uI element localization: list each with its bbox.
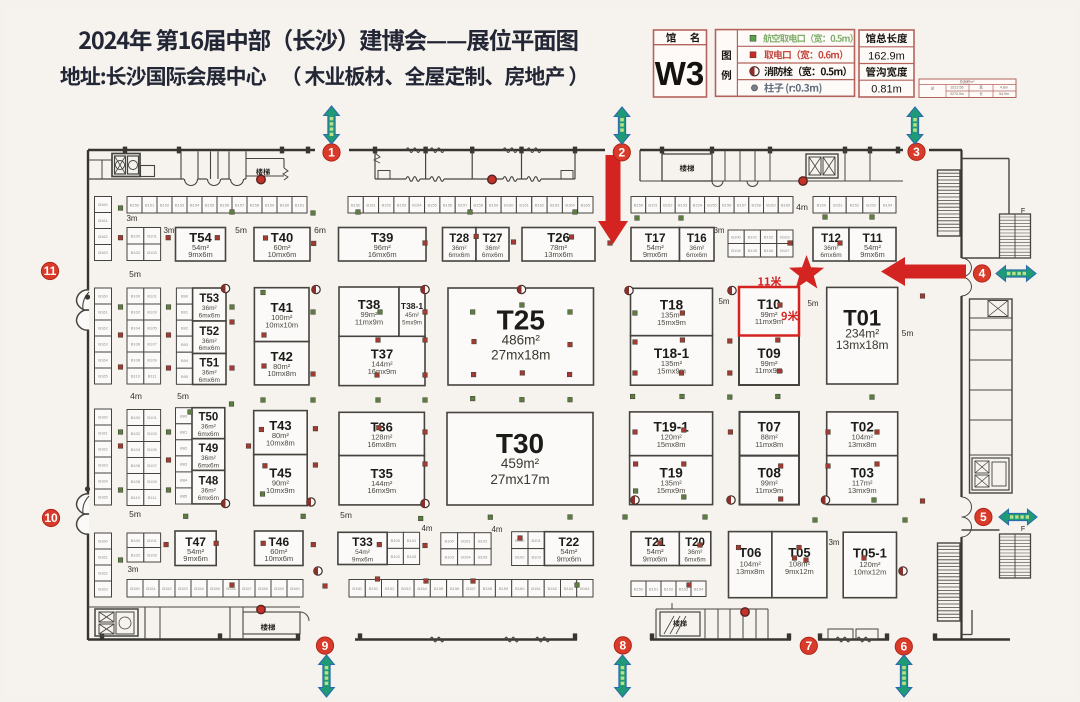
svg-text:B154: B154 <box>883 202 893 207</box>
svg-text:B103: B103 <box>147 552 157 557</box>
svg-text:10mx8m: 10mx8m <box>266 439 295 448</box>
svg-text:B162: B162 <box>98 571 108 576</box>
svg-text:B101: B101 <box>147 294 157 299</box>
svg-text:B152: B152 <box>663 202 673 207</box>
svg-text:13mx8m: 13mx8m <box>848 440 877 449</box>
svg-text:13mx6m: 13mx6m <box>544 250 573 259</box>
svg-text:B106: B106 <box>131 342 141 347</box>
svg-text:B108: B108 <box>131 358 141 363</box>
svg-text:B165: B165 <box>98 495 108 500</box>
svg-text:T28: T28 <box>449 233 469 245</box>
svg-text:B154: B154 <box>694 586 704 591</box>
svg-text:B102: B102 <box>391 554 401 559</box>
svg-text:T27: T27 <box>483 233 503 245</box>
svg-text:36m²: 36m² <box>201 455 217 462</box>
svg-text:B159: B159 <box>499 586 509 591</box>
svg-text:B159: B159 <box>766 202 776 207</box>
svg-text:B159: B159 <box>265 202 275 207</box>
svg-text:6mx6m: 6mx6m <box>199 377 220 384</box>
svg-text:B82: B82 <box>180 445 188 450</box>
svg-text:B110: B110 <box>131 374 141 379</box>
svg-text:B103: B103 <box>147 310 157 315</box>
svg-text:6mx6m: 6mx6m <box>199 345 220 352</box>
svg-text:5m: 5m <box>807 299 818 308</box>
svg-text:13mx18m: 13mx18m <box>836 338 889 352</box>
svg-text:B110: B110 <box>131 495 141 500</box>
svg-text:宽: 宽 <box>979 85 983 90</box>
svg-text:36m²: 36m² <box>485 245 501 252</box>
svg-text:总: 总 <box>931 85 935 90</box>
svg-text:B152: B152 <box>382 202 392 207</box>
svg-text:B91: B91 <box>181 310 189 315</box>
svg-text:15mx9m: 15mx9m <box>657 318 686 327</box>
svg-text:B164: B164 <box>580 586 590 591</box>
svg-text:11mx9m: 11mx9m <box>355 318 383 327</box>
svg-text:9mx6m: 9mx6m <box>188 250 213 259</box>
svg-text:162.9m: 162.9m <box>868 51 905 63</box>
svg-text:10: 10 <box>44 511 58 525</box>
svg-text:B154: B154 <box>412 202 422 207</box>
svg-text:B106: B106 <box>764 248 774 253</box>
svg-text:15mx9m: 15mx9m <box>657 486 686 495</box>
svg-text:B152: B152 <box>385 586 395 591</box>
svg-text:5m: 5m <box>902 328 914 338</box>
svg-text:486m²: 486m² <box>502 333 541 348</box>
svg-text:B101: B101 <box>748 234 758 239</box>
svg-text:36m²: 36m² <box>689 245 705 252</box>
svg-text:B156: B156 <box>220 202 230 207</box>
svg-text:9mx6m: 9mx6m <box>183 554 208 563</box>
svg-text:B100: B100 <box>131 294 141 299</box>
svg-text:6m: 6m <box>314 225 326 235</box>
svg-text:36m²: 36m² <box>202 370 218 377</box>
svg-text:T50: T50 <box>198 412 218 424</box>
svg-text:15mx8m: 15mx8m <box>657 440 686 449</box>
svg-text:B164: B164 <box>565 202 575 207</box>
svg-text:T33: T33 <box>352 535 373 549</box>
svg-text:T51: T51 <box>199 358 219 370</box>
svg-text:5m: 5m <box>177 391 189 401</box>
svg-text:B152: B152 <box>664 586 674 591</box>
svg-text:5m: 5m <box>129 509 141 519</box>
svg-text:B160: B160 <box>98 539 108 544</box>
svg-text:16mx8m: 16mx8m <box>367 440 396 449</box>
svg-text:总面积m²: 总面积m² <box>960 79 976 84</box>
svg-text:4m: 4m <box>491 525 502 534</box>
svg-text:B108: B108 <box>131 479 141 484</box>
svg-text:36m²: 36m² <box>202 338 218 345</box>
svg-text:459m²: 459m² <box>501 456 540 471</box>
svg-text:6mx6m: 6mx6m <box>684 557 705 564</box>
svg-text:B102: B102 <box>764 234 774 239</box>
svg-text:B100: B100 <box>131 538 141 543</box>
svg-text:3m: 3m <box>126 214 137 223</box>
svg-text:3m: 3m <box>127 565 138 574</box>
svg-text:长: 长 <box>979 91 983 96</box>
svg-text:9mx12m: 9mx12m <box>785 567 814 576</box>
svg-text:5: 5 <box>980 510 987 524</box>
svg-text:B162: B162 <box>98 447 108 452</box>
svg-text:0.81m: 0.81m <box>871 84 902 96</box>
svg-text:B101: B101 <box>532 538 542 543</box>
svg-text:T48: T48 <box>198 476 218 488</box>
svg-text:B102: B102 <box>131 552 141 557</box>
svg-text:6mx6m: 6mx6m <box>198 463 219 470</box>
svg-text:B150: B150 <box>634 586 644 591</box>
svg-text:B100: B100 <box>131 415 141 420</box>
svg-text:T49: T49 <box>198 443 218 455</box>
svg-text:B153: B153 <box>866 202 876 207</box>
svg-text:B81: B81 <box>180 429 188 434</box>
svg-text:27mx17m: 27mx17m <box>490 472 549 487</box>
svg-text:5m: 5m <box>129 269 141 279</box>
svg-text:B102: B102 <box>515 555 525 560</box>
svg-text:B103: B103 <box>407 554 417 559</box>
svg-text:9mx6m: 9mx6m <box>643 250 668 259</box>
svg-text:B102: B102 <box>478 538 488 543</box>
svg-text:B150: B150 <box>634 202 644 207</box>
svg-text:3m: 3m <box>163 226 174 235</box>
svg-text:B150: B150 <box>352 586 362 591</box>
svg-text:B104: B104 <box>131 447 141 452</box>
svg-text:B103: B103 <box>780 234 790 239</box>
svg-text:6mx6m: 6mx6m <box>449 252 470 259</box>
svg-text:B153: B153 <box>175 202 185 207</box>
svg-text:54m²: 54m² <box>355 549 371 556</box>
svg-text:B105: B105 <box>478 555 488 560</box>
svg-text:B150: B150 <box>817 202 827 207</box>
svg-text:13mx9m: 13mx9m <box>848 486 877 495</box>
svg-text:B160: B160 <box>280 202 290 207</box>
svg-text:4: 4 <box>979 267 986 281</box>
svg-text:B83: B83 <box>180 462 188 467</box>
svg-text:36m²: 36m² <box>688 549 704 556</box>
svg-text:B155: B155 <box>210 586 220 591</box>
svg-text:B106: B106 <box>131 463 141 468</box>
svg-text:3213.56: 3213.56 <box>951 86 964 90</box>
svg-text:36m²: 36m² <box>824 245 840 252</box>
svg-text:10mx6m: 10mx6m <box>264 554 293 563</box>
svg-text:36m²: 36m² <box>452 245 468 252</box>
svg-text:B163: B163 <box>98 250 108 255</box>
svg-text:B156: B156 <box>450 586 460 591</box>
svg-text:T25: T25 <box>497 305 545 336</box>
svg-text:11: 11 <box>44 264 57 278</box>
svg-text:B101: B101 <box>461 538 471 543</box>
svg-text:B84: B84 <box>180 478 188 483</box>
svg-text:6mx6m: 6mx6m <box>198 431 219 438</box>
svg-text:9: 9 <box>322 639 329 653</box>
svg-text:B94: B94 <box>181 358 189 363</box>
svg-text:8: 8 <box>619 639 626 653</box>
svg-text:B103: B103 <box>147 250 157 255</box>
svg-text:B95: B95 <box>181 374 189 379</box>
svg-text:W3: W3 <box>655 55 705 92</box>
svg-text:B111: B111 <box>148 374 158 379</box>
svg-text:B154: B154 <box>190 202 200 207</box>
svg-text:B150: B150 <box>130 202 140 207</box>
svg-text:B104: B104 <box>131 326 141 331</box>
svg-text:B162: B162 <box>98 234 108 239</box>
svg-text:5m: 5m <box>340 510 352 520</box>
svg-text:B155: B155 <box>205 202 215 207</box>
svg-text:B157: B157 <box>242 586 252 591</box>
svg-text:B164: B164 <box>98 479 108 484</box>
svg-text:B151: B151 <box>648 202 658 207</box>
svg-text:9mx6m: 9mx6m <box>860 250 885 259</box>
svg-text:B109: B109 <box>147 358 157 363</box>
svg-text:B161: B161 <box>98 310 108 315</box>
svg-text:F: F <box>1021 208 1025 215</box>
svg-text:6mx6m: 6mx6m <box>820 252 841 259</box>
svg-text:B100: B100 <box>731 234 741 239</box>
svg-text:B161: B161 <box>98 431 108 436</box>
svg-text:B161: B161 <box>98 218 108 223</box>
svg-text:B107: B107 <box>147 342 157 347</box>
svg-text:B163: B163 <box>98 463 108 468</box>
svg-text:B151: B151 <box>145 202 155 207</box>
svg-text:B104: B104 <box>461 555 471 560</box>
svg-text:B111: B111 <box>148 495 158 500</box>
svg-text:27mx18m: 27mx18m <box>491 348 550 363</box>
svg-text:3m: 3m <box>713 226 724 235</box>
svg-text:3270.9m: 3270.9m <box>950 92 964 96</box>
svg-text:B152: B152 <box>160 202 170 207</box>
svg-text:F: F <box>1021 526 1025 533</box>
svg-text:6mx6m: 6mx6m <box>198 495 219 502</box>
svg-text:B153: B153 <box>678 202 688 207</box>
svg-text:B160: B160 <box>781 202 791 207</box>
svg-text:6mx6m: 6mx6m <box>199 313 220 320</box>
svg-text:B102: B102 <box>131 310 141 315</box>
svg-text:B92: B92 <box>181 326 189 331</box>
svg-text:B158: B158 <box>752 202 762 207</box>
svg-text:B151: B151 <box>369 586 379 591</box>
svg-text:B160: B160 <box>290 586 300 591</box>
svg-text:B155: B155 <box>434 586 444 591</box>
svg-text:10mx9m: 10mx9m <box>266 486 295 495</box>
svg-text:B103: B103 <box>445 555 455 560</box>
svg-text:B155: B155 <box>428 202 438 207</box>
svg-text:B160: B160 <box>504 202 514 207</box>
svg-text:2: 2 <box>618 146 625 160</box>
svg-text:B164: B164 <box>98 358 108 363</box>
svg-text:B93: B93 <box>181 342 189 347</box>
svg-text:16mx9m: 16mx9m <box>367 486 396 495</box>
svg-text:11mx9m: 11mx9m <box>755 317 783 326</box>
svg-text:5mx9m: 5mx9m <box>402 321 422 327</box>
svg-text:B101: B101 <box>147 415 157 420</box>
svg-text:B151: B151 <box>146 586 156 591</box>
svg-text:1: 1 <box>328 146 335 160</box>
svg-text:B157: B157 <box>458 202 468 207</box>
svg-text:45m²: 45m² <box>405 313 419 319</box>
svg-text:B100: B100 <box>445 538 455 543</box>
svg-text:10mx8m: 10mx8m <box>267 369 296 378</box>
svg-text:B158: B158 <box>258 586 268 591</box>
svg-text:B152: B152 <box>850 202 860 207</box>
svg-text:T30: T30 <box>496 428 544 459</box>
svg-text:B107: B107 <box>780 248 790 253</box>
svg-text:4m: 4m <box>421 524 432 533</box>
svg-text:B156: B156 <box>443 202 453 207</box>
svg-text:B165: B165 <box>98 374 108 379</box>
svg-text:B100: B100 <box>131 233 141 238</box>
svg-text:B150: B150 <box>351 202 361 207</box>
svg-text:B101: B101 <box>407 538 417 543</box>
svg-text:B158: B158 <box>483 586 493 591</box>
svg-text:6mx6m: 6mx6m <box>686 252 707 259</box>
svg-text:B150: B150 <box>130 586 140 591</box>
svg-text:B153: B153 <box>397 202 407 207</box>
svg-text:B101: B101 <box>147 233 157 238</box>
svg-text:B152: B152 <box>162 586 172 591</box>
svg-text:B104: B104 <box>731 248 741 253</box>
svg-text:B163: B163 <box>98 342 108 347</box>
svg-text:9mx6m: 9mx6m <box>643 555 668 564</box>
svg-text:54.9m: 54.9m <box>999 92 1009 96</box>
svg-text:B109: B109 <box>147 479 157 484</box>
svg-text:T53: T53 <box>199 293 219 305</box>
svg-text:B157: B157 <box>737 202 747 207</box>
svg-text:B107: B107 <box>147 463 157 468</box>
svg-text:16mx9m: 16mx9m <box>368 367 397 376</box>
svg-text:B163: B163 <box>98 587 108 592</box>
svg-text:B90: B90 <box>181 294 189 299</box>
svg-text:T16: T16 <box>687 233 707 245</box>
svg-text:B103: B103 <box>147 431 157 436</box>
svg-text:10mx6m: 10mx6m <box>268 250 297 259</box>
svg-text:11mx8m: 11mx8m <box>755 440 783 449</box>
svg-text:B103: B103 <box>532 555 542 560</box>
svg-text:9mx6m: 9mx6m <box>557 555 582 564</box>
svg-text:B153: B153 <box>401 586 411 591</box>
svg-text:B159: B159 <box>274 586 284 591</box>
svg-text:B154: B154 <box>418 586 428 591</box>
svg-text:B102: B102 <box>131 431 141 436</box>
svg-text:T05-1: T05-1 <box>853 546 887 561</box>
svg-text:B154: B154 <box>693 202 703 207</box>
svg-text:B105: B105 <box>147 447 157 452</box>
svg-text:B162: B162 <box>548 586 558 591</box>
svg-text:B160: B160 <box>98 415 108 420</box>
svg-text:9mx6m: 9mx6m <box>352 556 373 563</box>
svg-text:36m²: 36m² <box>201 488 217 495</box>
svg-text:4m: 4m <box>796 202 808 212</box>
svg-text:B160: B160 <box>515 586 525 591</box>
svg-text:13mx8m: 13mx8m <box>736 567 765 576</box>
svg-text:B154: B154 <box>194 586 204 591</box>
svg-text:B101: B101 <box>147 538 157 543</box>
svg-text:B85: B85 <box>180 494 188 499</box>
svg-text:T52: T52 <box>199 326 219 338</box>
svg-text:T38-1: T38-1 <box>401 301 423 311</box>
svg-text:7: 7 <box>805 639 812 653</box>
svg-text:10mx12m: 10mx12m <box>853 568 886 577</box>
svg-text:11mx9m: 11mx9m <box>755 486 783 495</box>
svg-text:T06: T06 <box>739 545 761 560</box>
svg-text:B161: B161 <box>295 202 305 207</box>
svg-text:16mx6m: 16mx6m <box>368 250 397 259</box>
svg-text:B161: B161 <box>98 555 108 560</box>
svg-text:B151: B151 <box>833 202 843 207</box>
svg-text:6mx6m: 6mx6m <box>482 252 503 259</box>
svg-text:5m: 5m <box>718 297 729 306</box>
svg-text:B165: B165 <box>581 202 591 207</box>
svg-text:B162: B162 <box>535 202 545 207</box>
svg-text:10mx10m: 10mx10m <box>265 321 298 330</box>
svg-text:B157: B157 <box>466 586 476 591</box>
svg-text:B155: B155 <box>707 202 717 207</box>
svg-text:B160: B160 <box>98 202 108 207</box>
svg-text:B162: B162 <box>98 326 108 331</box>
svg-text:B105: B105 <box>748 248 758 253</box>
svg-text:B105: B105 <box>147 326 157 331</box>
svg-text:B80: B80 <box>180 413 188 418</box>
svg-text:6: 6 <box>900 640 907 654</box>
svg-text:B151: B151 <box>366 202 376 207</box>
svg-text:B102: B102 <box>131 250 141 255</box>
svg-text:B158: B158 <box>250 202 260 207</box>
svg-text:B159: B159 <box>489 202 499 207</box>
svg-text:B163: B163 <box>550 202 560 207</box>
svg-text:36m²: 36m² <box>202 305 218 312</box>
svg-text:B161: B161 <box>519 202 529 207</box>
svg-text:4m: 4m <box>130 391 142 401</box>
svg-text:B158: B158 <box>474 202 484 207</box>
svg-text:B160: B160 <box>98 294 108 299</box>
svg-text:B161: B161 <box>531 586 541 591</box>
svg-text:B157: B157 <box>235 202 245 207</box>
svg-text:B156: B156 <box>722 202 732 207</box>
svg-text:3: 3 <box>913 145 920 159</box>
svg-text:B100: B100 <box>391 538 401 543</box>
svg-text:36m²: 36m² <box>201 424 217 431</box>
svg-text:3m: 3m <box>828 538 839 547</box>
svg-text:B151: B151 <box>649 586 659 591</box>
svg-text:B163: B163 <box>564 586 574 591</box>
svg-text:B153: B153 <box>178 586 188 591</box>
svg-text:4.8m: 4.8m <box>1000 86 1008 90</box>
svg-text:5m: 5m <box>235 225 247 235</box>
